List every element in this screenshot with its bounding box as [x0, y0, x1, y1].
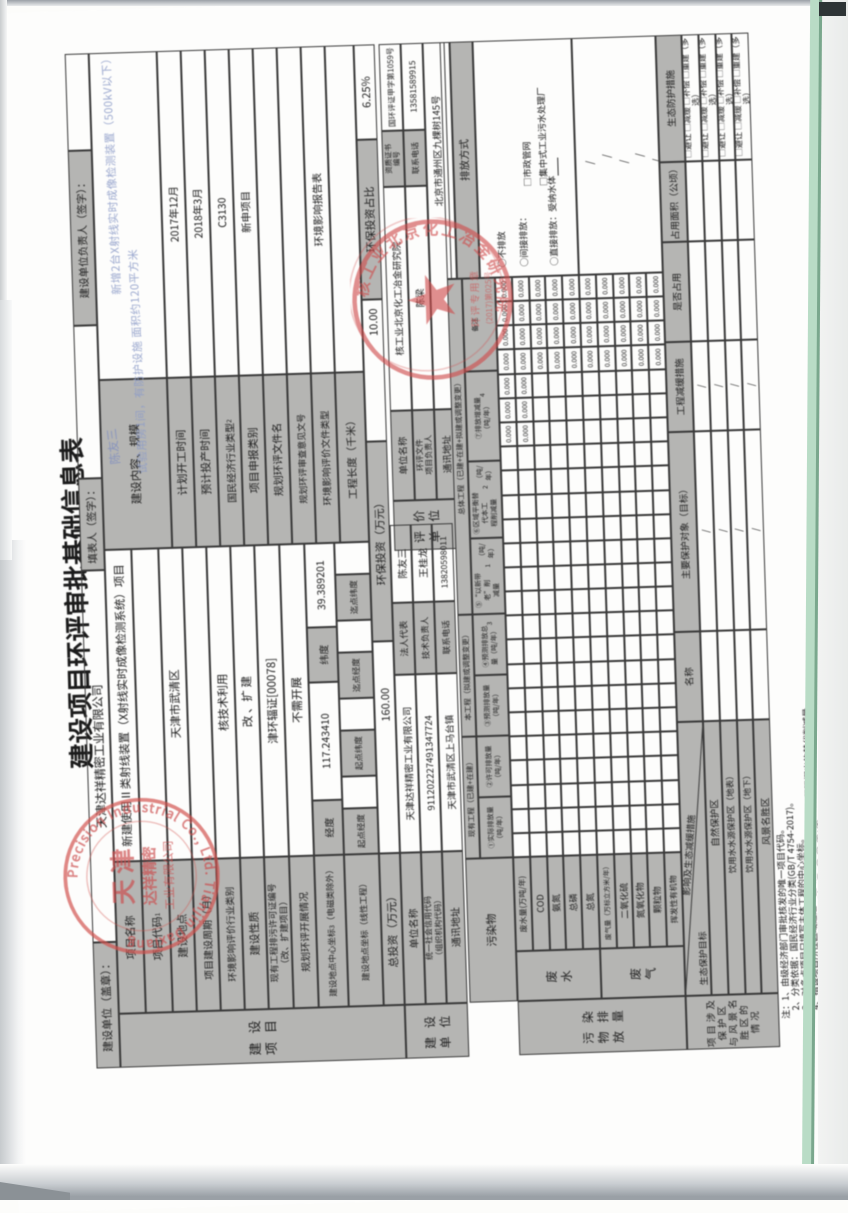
- svg-text:达祥精密: 达祥精密: [138, 846, 161, 906]
- svg-text:工业有限公司: 工业有限公司: [160, 840, 178, 910]
- svg-text:环评专用章: 环评专用章: [466, 269, 483, 327]
- svg-text:天 津: 天 津: [103, 848, 141, 905]
- svg-text:生态保护目标: 生态保护目标: [696, 931, 711, 985]
- svg-text:(2017)第025号: (2017)第025号: [483, 271, 496, 324]
- svg-text:影响及生态减缓措施: 影响及生态减缓措施: [679, 814, 697, 896]
